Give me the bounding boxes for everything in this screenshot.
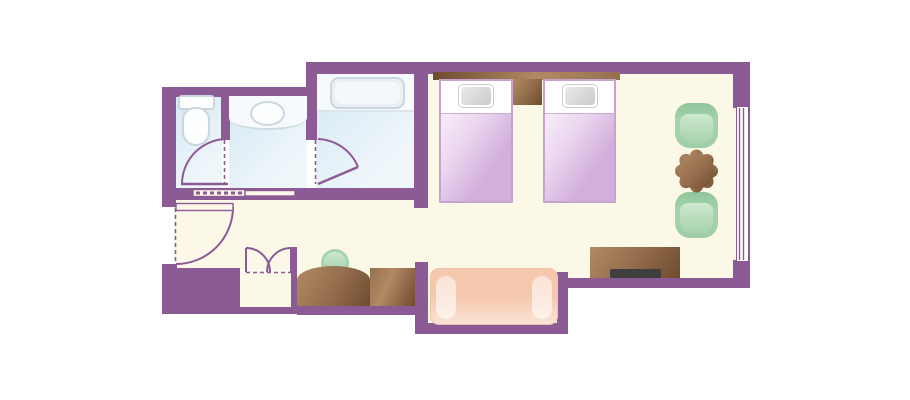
bed-2-pillow-cushion: [565, 87, 595, 105]
corridor-main-opening-floor: [412, 206, 430, 264]
bathtub-inner: [335, 82, 400, 104]
twin-bed-2: [543, 79, 616, 203]
floor-plan: [0, 0, 910, 400]
twin-bed-1: [439, 79, 513, 203]
nightstand: [513, 79, 542, 105]
bed-2-pillow: [562, 84, 598, 108]
wall-bath-main-divider: [414, 62, 428, 208]
closet-floor: [240, 271, 291, 309]
sofa: [430, 268, 558, 325]
window-outer-edge: [748, 106, 750, 262]
sofa-armrest-left: [436, 276, 456, 319]
wall-alcove-right: [557, 272, 568, 334]
bed-1-pillow: [458, 84, 494, 108]
armchair-lower-cushion: [680, 203, 713, 233]
wall-bath-bottom: [162, 188, 414, 200]
wall-right-upper: [733, 62, 750, 108]
sink-basin: [250, 101, 285, 126]
luggage-rack: [370, 268, 415, 306]
wall-bottom-right: [568, 278, 750, 288]
bed-1-blanket: [441, 113, 511, 201]
bed-2-blanket: [545, 113, 614, 201]
wall-right-lower: [733, 260, 750, 288]
armchair-upper-cushion: [680, 114, 713, 143]
wall-vanity-bath-divider: [306, 62, 317, 140]
sofa-armrest-right: [532, 276, 552, 319]
tv: [610, 269, 661, 278]
wall-counter-bottom: [297, 306, 415, 315]
bed-1-pillow-cushion: [461, 87, 491, 105]
wall-closet-bottom: [240, 307, 297, 314]
bathtub: [330, 77, 405, 109]
vanity-counter: [297, 266, 370, 306]
wall-block-bottom-left: [162, 268, 240, 314]
armchair-upper: [675, 103, 718, 148]
armchair-lower: [675, 192, 718, 238]
toilet-bowl: [182, 107, 210, 146]
